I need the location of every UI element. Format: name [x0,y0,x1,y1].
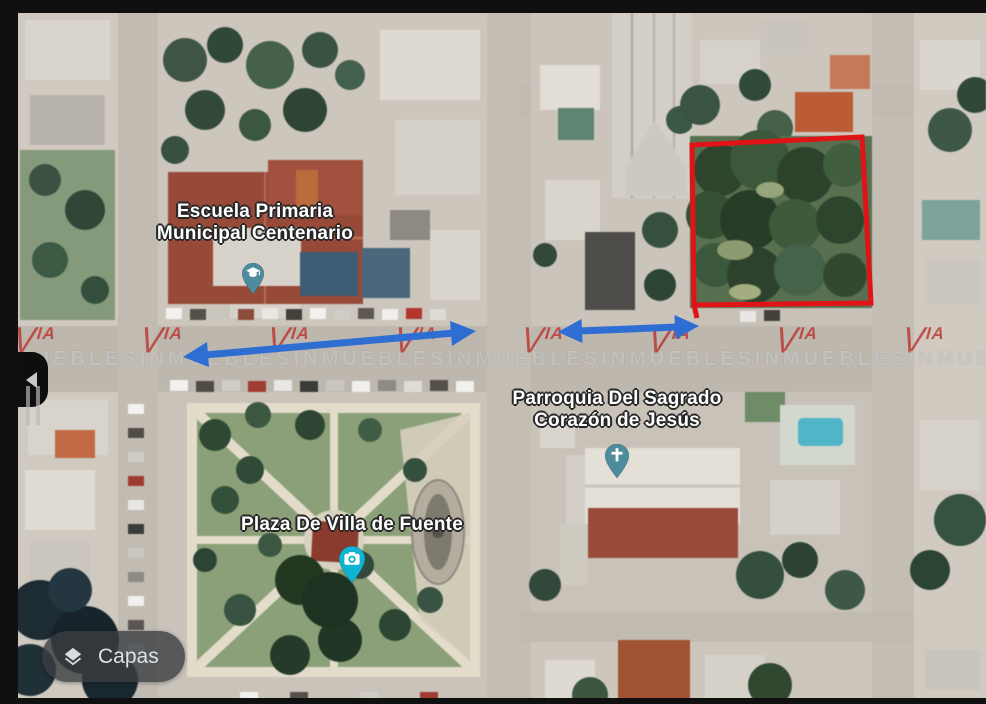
block-top-center [531,13,694,326]
block-right [910,13,986,704]
letterbox-bottom [0,698,986,704]
letterbox-left [0,0,18,704]
block-school [158,13,487,326]
layers-button[interactable]: Capas [42,631,185,682]
block-top-left [18,13,118,326]
place-label-line: Plaza De Villa de Fuente [241,514,463,536]
school-pin[interactable] [242,263,264,294]
place-label-line: Parroquia Del Sagrado [512,388,721,410]
letterbox-top [0,0,986,13]
place-label-plaza[interactable]: Plaza De Villa de Fuente [241,514,463,536]
place-label-line: Escuela Primaria [157,201,353,223]
camera-icon [344,552,359,565]
map-viewport[interactable]: VIA VIA VIA VIA VIA VIA VIA VIA INMUEBLE… [0,0,986,704]
layers-button-label: Capas [98,645,159,669]
green-lot [686,130,872,308]
place-label-church[interactable]: Parroquia Del Sagrado Corazón de Jesús [512,388,721,432]
satellite-imagery [0,0,986,704]
place-label-line: Municipal Centenario [157,223,353,245]
church-pin[interactable] [605,444,629,478]
place-label-school[interactable]: Escuela Primaria Municipal Centenario [157,201,353,245]
scrub-bars [26,386,40,425]
block-bottom-right [531,640,872,704]
layers-icon [62,646,84,668]
plaza-pin[interactable] [339,546,365,583]
place-label-line: Corazón de Jesús [512,410,721,432]
block-above-lot [680,13,872,146]
